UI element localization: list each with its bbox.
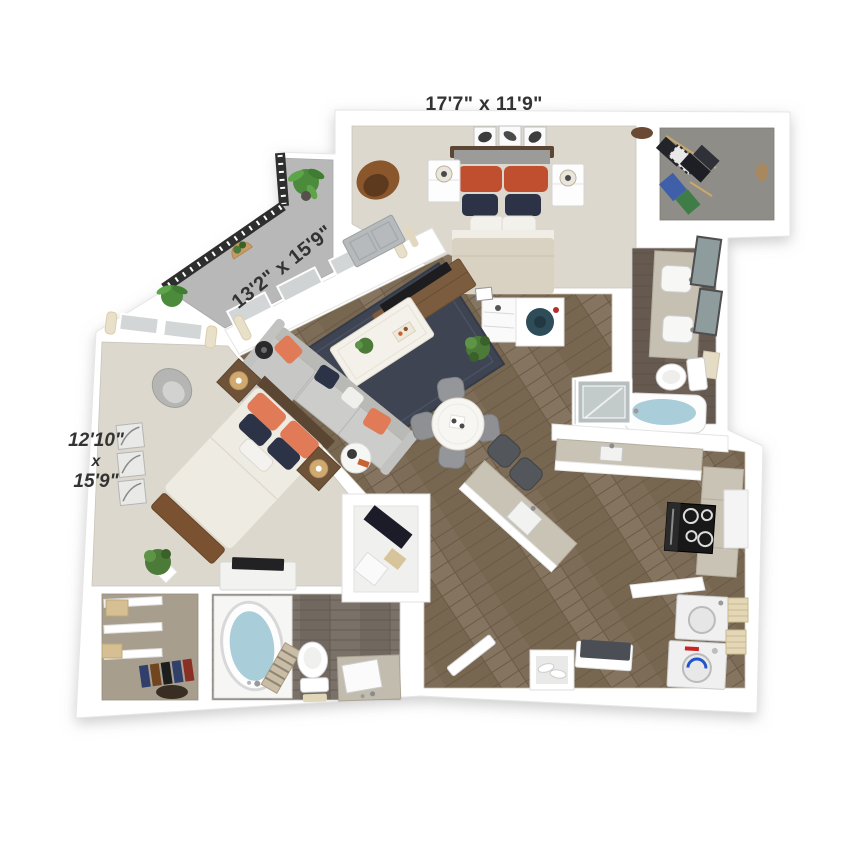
basket	[102, 644, 122, 658]
kitchen-sink	[600, 446, 623, 462]
thermostat	[475, 287, 492, 301]
pillow	[504, 166, 548, 192]
water-heater-closet	[516, 298, 564, 346]
floorplan-svg: 17'7" x 11'9" 13'2" x 15'9" 12'10" x 15'…	[0, 0, 843, 844]
shoe-cubby	[530, 650, 574, 690]
basket	[106, 600, 128, 616]
entry-bench	[575, 639, 633, 671]
stove	[664, 502, 715, 553]
bedroom2-dimensions-line2: x	[91, 453, 102, 470]
dining-table	[432, 398, 484, 450]
vanity	[337, 655, 400, 701]
tall-cabinet	[724, 490, 748, 548]
linen-closet	[342, 494, 430, 602]
tv	[232, 557, 284, 571]
floorplan-image: 17'7" x 11'9" 13'2" x 15'9" 12'10" x 15'…	[0, 0, 843, 844]
dresser-with-tv	[220, 557, 296, 590]
nightstand-right	[552, 164, 584, 206]
bathtub	[623, 393, 706, 434]
dryer	[675, 595, 729, 642]
pillow	[458, 166, 502, 192]
bag	[631, 127, 653, 139]
master-bedroom-dimensions: 17'7" x 11'9"	[425, 93, 542, 115]
curtain	[205, 325, 218, 348]
mirror	[694, 289, 722, 336]
niche-shelf	[482, 298, 516, 342]
washer	[667, 641, 727, 690]
wall-art	[474, 126, 546, 147]
shower	[577, 380, 631, 424]
bedroom2-dimensions-line1: 12'10"	[68, 430, 125, 451]
nightstand-left	[428, 160, 460, 202]
side-table	[341, 443, 371, 473]
mirror	[342, 659, 382, 693]
bedroom2-dimensions-line3: 15'9"	[73, 471, 119, 492]
duffel-bag	[156, 685, 188, 699]
curtain	[105, 311, 118, 334]
